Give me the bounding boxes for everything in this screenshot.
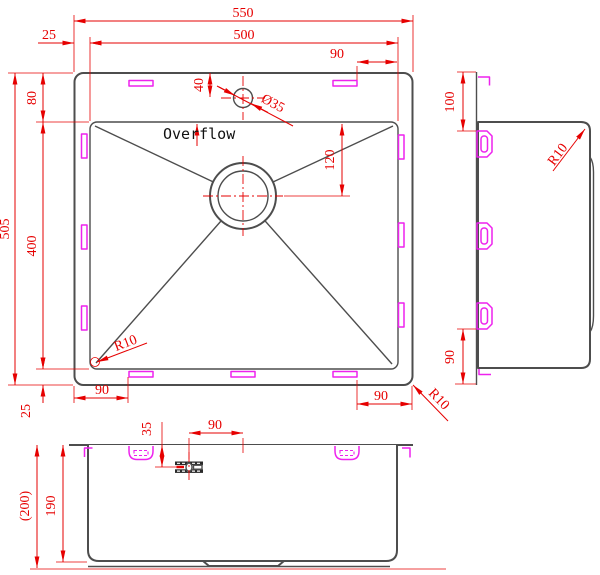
svg-text:90: 90 (374, 389, 388, 404)
dim-side-clip-top: 100 (443, 72, 476, 131)
sink-technical-drawing: Overflow 550 500 25 90 (0, 0, 600, 575)
radius-outer-corner: R10 (413, 385, 452, 421)
svg-text:90: 90 (208, 418, 222, 433)
dim-rim-top: 80 (25, 91, 40, 105)
svg-text:90: 90 (330, 47, 344, 62)
dim-bowl-height: 190 (44, 445, 87, 562)
overflow-label: Overflow (163, 125, 236, 143)
svg-text:120: 120 (323, 150, 338, 171)
plan-view: Overflow 550 500 25 90 (0, 6, 452, 421)
dim-rim-bottom: 25 (19, 404, 34, 418)
svg-text:100: 100 (443, 92, 458, 113)
svg-text:190: 190 (44, 496, 59, 517)
dim-side-clip-bottom: 90 (443, 329, 476, 384)
drawing-sheet: Overflow 550 500 25 90 (0, 0, 600, 575)
svg-text:(200): (200) (18, 491, 33, 522)
dim-bowl-depth: 400 (25, 236, 40, 257)
dim-overall-depth: 505 (0, 219, 13, 240)
front-view: (200) 190 35 90 (18, 418, 446, 569)
svg-text:90: 90 (443, 350, 458, 364)
dim-rim-left: 25 (38, 28, 104, 43)
svg-text:90: 90 (95, 383, 109, 398)
svg-text:R10: R10 (425, 386, 452, 413)
svg-text:550: 550 (233, 6, 254, 21)
svg-text:40: 40 (192, 78, 207, 92)
svg-text:500: 500 (234, 28, 255, 43)
bowl-outline (90, 122, 398, 369)
side-body-outline (478, 122, 590, 368)
svg-text:25: 25 (42, 28, 56, 43)
svg-text:35: 35 (140, 422, 155, 436)
front-bowl-outline (88, 445, 397, 561)
side-view: 100 90 R10 (443, 72, 594, 385)
